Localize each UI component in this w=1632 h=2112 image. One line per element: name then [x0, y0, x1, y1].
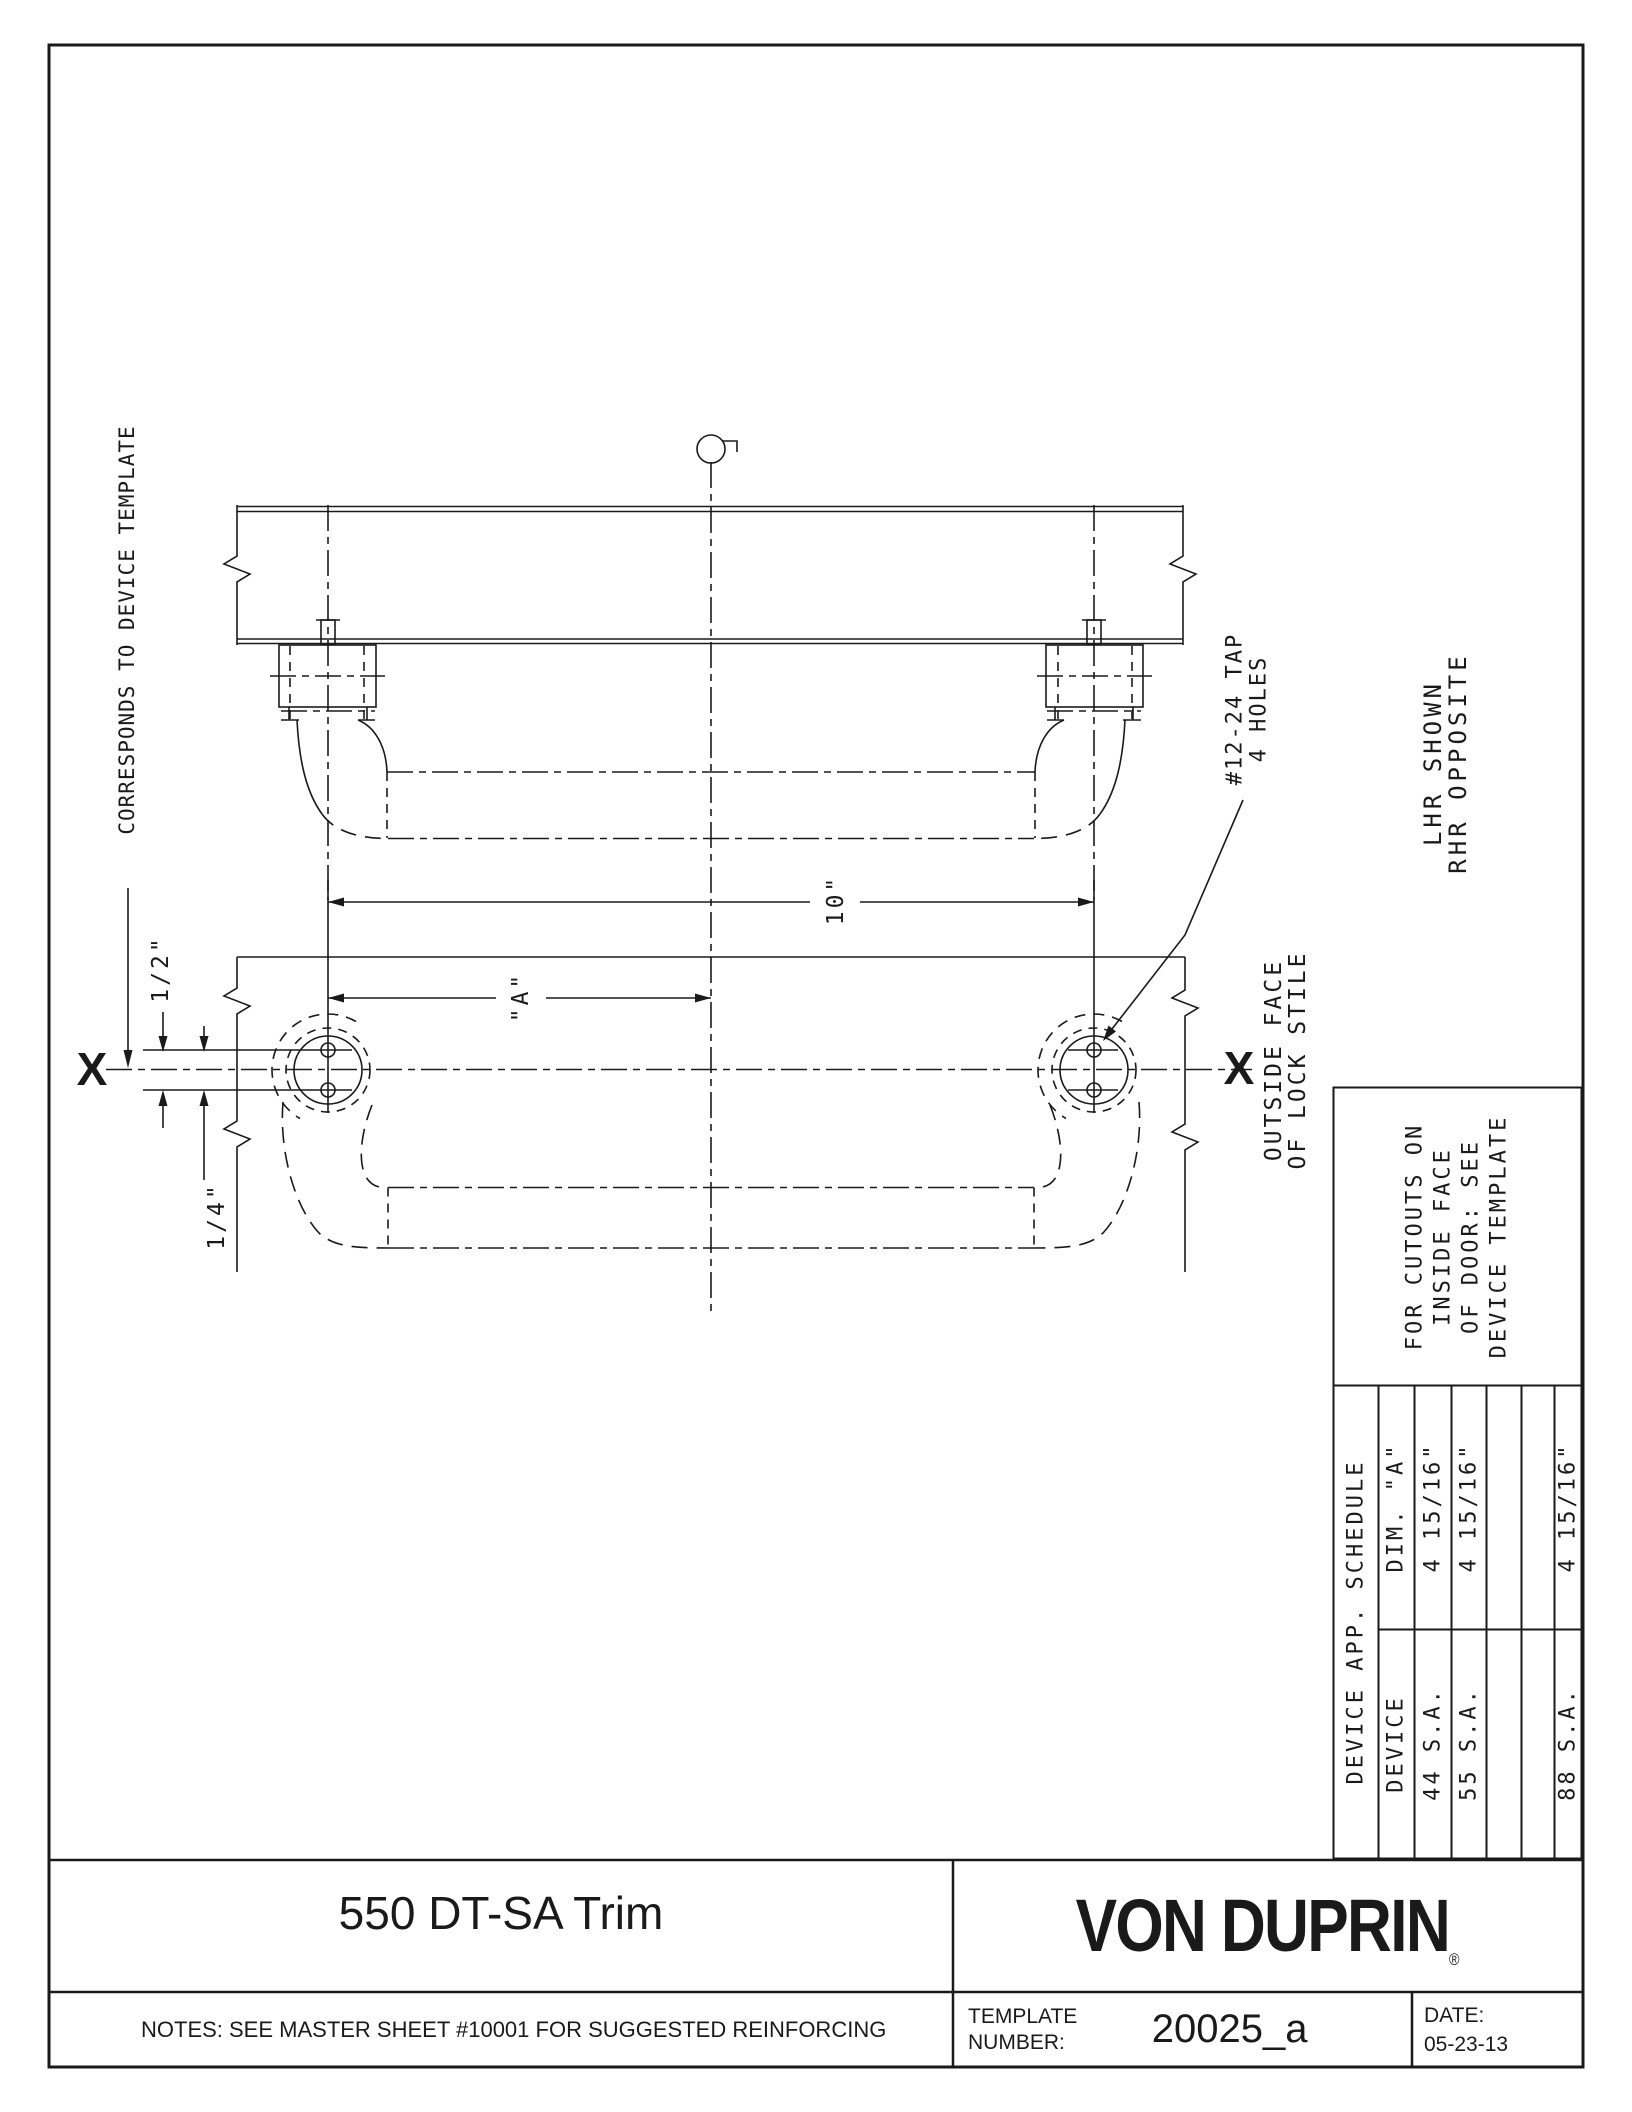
tap-holes-left: [143, 1014, 370, 1119]
schedule-title-row: DEVICE APP. SCHEDULE: [1335, 1387, 1378, 1858]
template-number-label: TEMPLATE NUMBER:: [953, 2004, 1077, 2056]
device-app-schedule: DEVICE APP. SCHEDULE DEVICE DIM. "A" 44 …: [1333, 1087, 1583, 1860]
brand-text: VON DUPRIN: [1076, 1884, 1449, 1967]
dim-44sa: 4 15/16": [1416, 1387, 1451, 1629]
svg-text:4 HOLES: 4 HOLES: [1247, 656, 1272, 763]
dim-88sa: 4 15/16": [1556, 1387, 1581, 1629]
device-44sa: 44 S.A.: [1416, 1629, 1451, 1858]
corresponds-label: CORRESPONDS TO DEVICE TEMPLATE: [115, 425, 139, 834]
schedule-title: DEVICE APP. SCHEDULE: [1335, 1387, 1378, 1858]
registered-mark-icon: ®: [1449, 1950, 1460, 1969]
centerline-symbol-icon: [697, 435, 737, 463]
svg-text:OF LOCK STILE: OF LOCK STILE: [1285, 950, 1311, 1169]
template-number-value: 20025_a: [1077, 2007, 1412, 2052]
svg-text:OUTSIDE FACE: OUTSIDE FACE: [1261, 959, 1287, 1161]
date-label: DATE:: [1424, 2001, 1583, 2030]
schedule-table: DEVICE APP. SCHEDULE DEVICE DIM. "A" 44 …: [1333, 1385, 1583, 1860]
brand-logo: VON DUPRIN®: [953, 1860, 1583, 1992]
template-number-cell: TEMPLATE NUMBER: 20025_a: [953, 1992, 1412, 2067]
schedule-header-row: DEVICE DIM. "A": [1377, 1387, 1414, 1858]
break-line-right: [1170, 505, 1196, 645]
half-inch-label: 1/2": [148, 935, 174, 1002]
brand-wordmark: VON DUPRIN®: [1076, 1883, 1460, 1970]
notes-text: NOTES: SEE MASTER SHEET #10001 FOR SUGGE…: [49, 1992, 953, 2067]
col-header-device: DEVICE: [1379, 1629, 1414, 1858]
corresponds-leader: [124, 888, 133, 1068]
x-mark-right: X: [1224, 1042, 1255, 1094]
quarter-inch-label: 1/4": [204, 1182, 230, 1249]
date-cell: DATE: 05-23-13: [1412, 1992, 1583, 2067]
note-line: OF DOOR: SEE: [1458, 1139, 1486, 1334]
dim-55sa: 4 15/16": [1452, 1387, 1485, 1629]
table-row: 44 S.A. 4 15/16": [1414, 1387, 1451, 1858]
handing-label: LHR SHOWN RHR OPPOSITE: [1419, 652, 1472, 873]
svg-text:#12-24 TAP: #12-24 TAP: [1223, 633, 1248, 785]
top-view-door-section: [224, 435, 1196, 1312]
tap-label: #12-24 TAP 4 HOLES: [1223, 633, 1272, 785]
dim-a-label: "A": [508, 972, 534, 1023]
device-88sa: 88 S.A.: [1556, 1629, 1581, 1858]
device-55sa: 55 S.A.: [1452, 1629, 1485, 1858]
col-header-dim-a: DIM. "A": [1379, 1387, 1414, 1629]
note-line: INSIDE FACE: [1430, 1147, 1458, 1326]
stile-edge-right: [1172, 957, 1198, 1272]
ten-inch-label: 10": [823, 875, 849, 926]
table-row: [1485, 1387, 1521, 1858]
drawing-sheet: CORRESPONDS TO DEVICE TEMPLATE 1/2" 1/4"…: [0, 0, 1632, 2112]
schedule-note: FOR CUTOUTS ON INSIDE FACE OF DOOR: SEE …: [1333, 1087, 1583, 1385]
note-line: DEVICE TEMPLATE: [1486, 1115, 1514, 1359]
table-row: 88 S.A. 4 15/16": [1554, 1387, 1581, 1858]
note-line: FOR CUTOUTS ON: [1402, 1123, 1430, 1350]
tap-leader: [1103, 800, 1243, 1041]
x-mark-left: X: [77, 1043, 108, 1095]
svg-text:LHR SHOWN: LHR SHOWN: [1419, 680, 1447, 846]
svg-text:RHR OPPOSITE: RHR OPPOSITE: [1444, 652, 1472, 873]
front-view-lock-stile: [106, 880, 1252, 1272]
dimension-quarter-inch: [200, 1026, 209, 1180]
table-row: 55 S.A. 4 15/16": [1450, 1387, 1485, 1858]
date-value: 05-23-13: [1424, 2030, 1583, 2059]
tap-holes-right: [1038, 1014, 1136, 1119]
outside-face-label: OUTSIDE FACE OF LOCK STILE: [1261, 950, 1311, 1169]
table-row: [1521, 1387, 1554, 1858]
break-line-left: [224, 505, 250, 645]
drawing-title: 550 DT-SA Trim: [49, 1860, 953, 1992]
